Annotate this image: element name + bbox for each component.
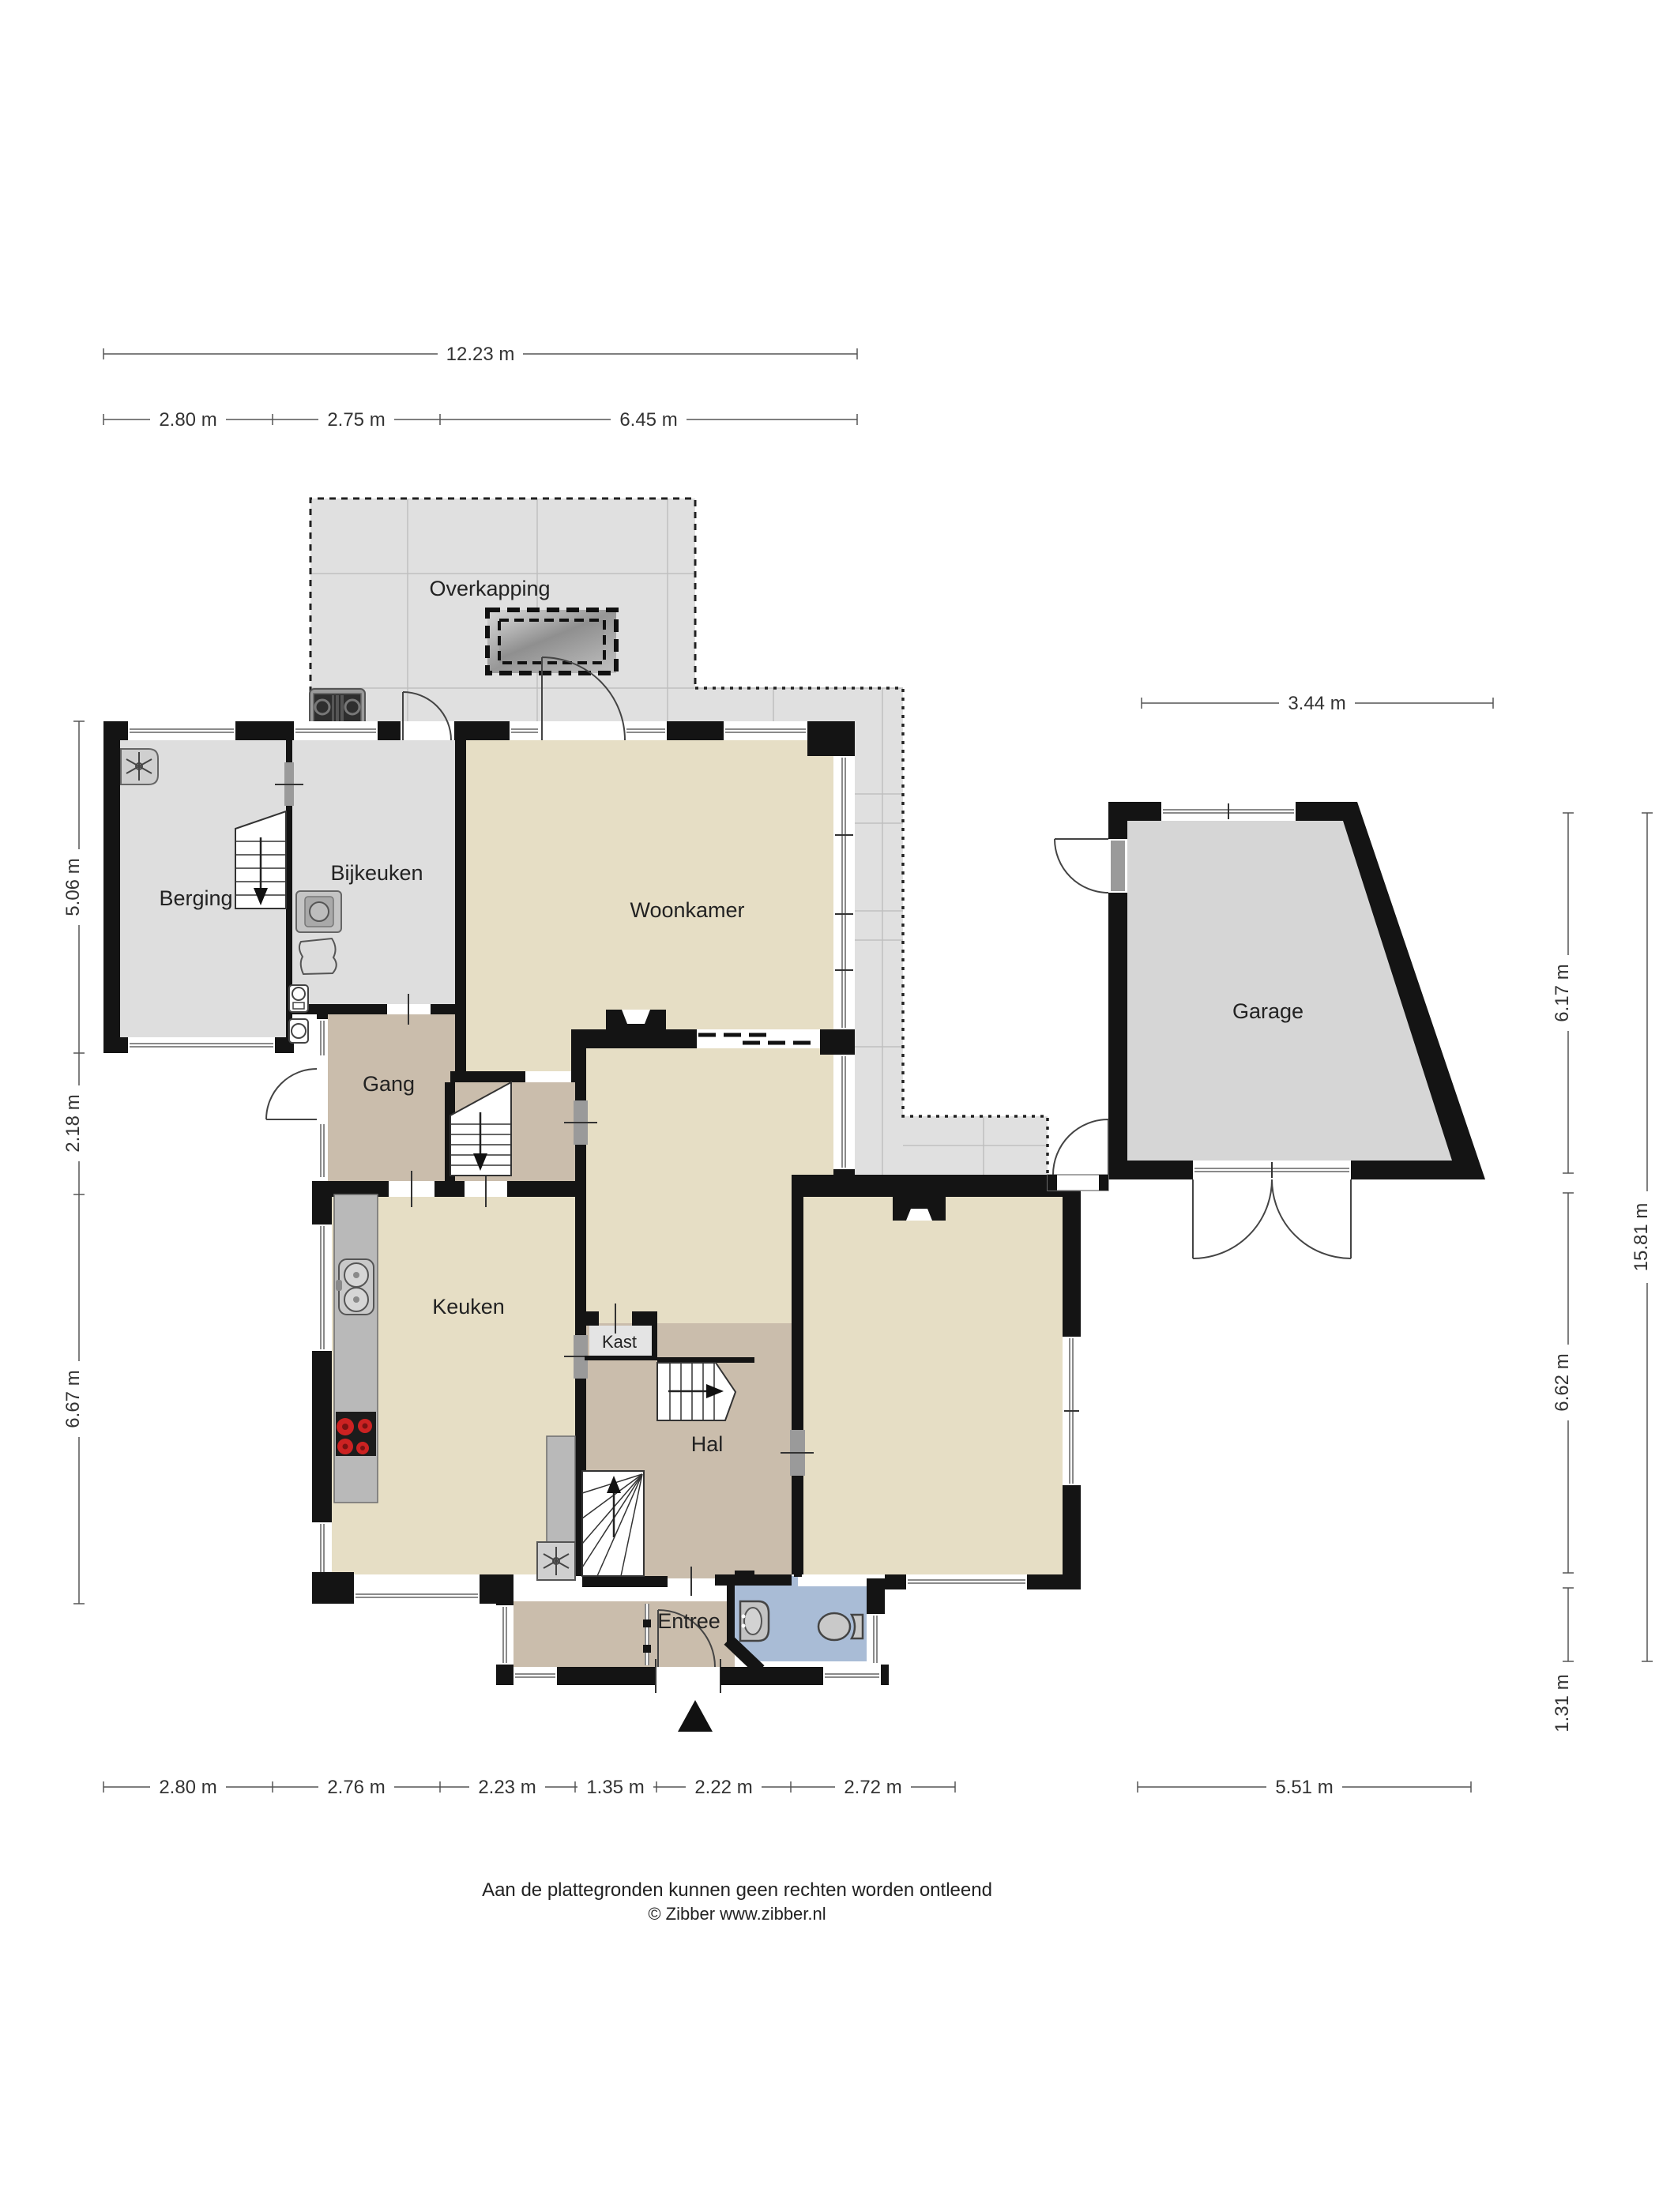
room-label-entree: Entree [657,1609,720,1633]
toilet-icon [818,1613,863,1640]
dim-label: 1.31 m [1552,1674,1573,1732]
dim-label: 6.45 m [619,409,677,431]
tall-cabinet [547,1436,575,1543]
door-garage-back [1055,839,1108,893]
washbasin-icon [740,1601,769,1641]
room-label-bijkeuken: Bijkeuken [330,861,423,885]
dim-label: 2.72 m [844,1777,901,1798]
fireplace-chimney [606,1010,666,1048]
dim-label: 6.17 m [1552,964,1573,1021]
dim-label: 1.35 m [586,1777,644,1798]
dim-right-outer: 15.81 m [1631,813,1659,1661]
dim-label: 5.51 m [1275,1777,1333,1798]
room-label-kast: Kast [602,1332,637,1352]
dim-top-total: 12.23 m [103,341,857,365]
dim-top-segments: 2.80 m 2.75 m 6.45 m [103,407,857,431]
garage-building [1048,802,1485,1258]
sliding-door [697,1029,820,1048]
dim-left: 5.06 m 2.18 m 6.67 m [62,721,91,1604]
floorplan-canvas: Overkapping [0,0,1659,2212]
dim-label: 2.23 m [478,1777,536,1798]
dim-right-inner: 6.17 m 6.62 m 1.31 m [1552,813,1580,1741]
dim-garage-top: 3.44 m [1142,690,1493,714]
dim-label: 6.67 m [62,1370,84,1428]
room-label-garage: Garage [1232,999,1303,1023]
dim-label: 5.06 m [62,858,84,916]
dim-label: 2.22 m [694,1777,752,1798]
room-label-woonkamer: Woonkamer [630,898,744,922]
room-label-overkapping: Overkapping [429,577,550,600]
dim-label: 2.80 m [159,409,216,431]
dim-label: 2.80 m [159,1777,216,1798]
footer: Aan de plattegronden kunnen geen rechten… [482,1879,992,1924]
dim-label: 3.44 m [1288,693,1345,714]
skylight-icon [487,610,616,673]
entrance-arrow-icon [678,1700,713,1732]
room-label-berging: Berging [159,886,232,910]
sink-icon [336,1259,374,1315]
kitchen-counter [334,1194,378,1503]
room-unlabeled [803,1197,1063,1574]
dim-label: 12.23 m [446,344,515,365]
side-gate [1048,1119,1108,1191]
room-label-hal: Hal [691,1432,724,1456]
fireplace-chimney-2 [893,1197,946,1221]
dim-label: 2.75 m [327,409,385,431]
door-gang-exterior [266,1069,317,1119]
dim-label: 6.62 m [1552,1353,1573,1411]
footer-disclaimer: Aan de plattegronden kunnen geen rechten… [482,1879,992,1901]
ventilation-fan-icon [121,749,158,784]
cooktop-icon [336,1412,376,1456]
laundry-basket-icon [299,939,337,974]
ventilation-fan-icon-2 [537,1542,575,1580]
washing-machine-icon [296,891,341,932]
dim-label: 2.18 m [62,1094,84,1152]
footer-copyright: © Zibber www.zibber.nl [648,1904,826,1924]
dim-label: 15.81 m [1631,1203,1652,1272]
dim-bottom: 2.80 m 2.76 m 2.23 m 1.35 m 2.22 m 2.72 … [103,1774,1471,1798]
room-label-keuken: Keuken [432,1295,505,1319]
room-label-gang: Gang [363,1072,415,1096]
dim-label: 2.76 m [327,1777,385,1798]
garage-double-door [1193,1179,1351,1258]
